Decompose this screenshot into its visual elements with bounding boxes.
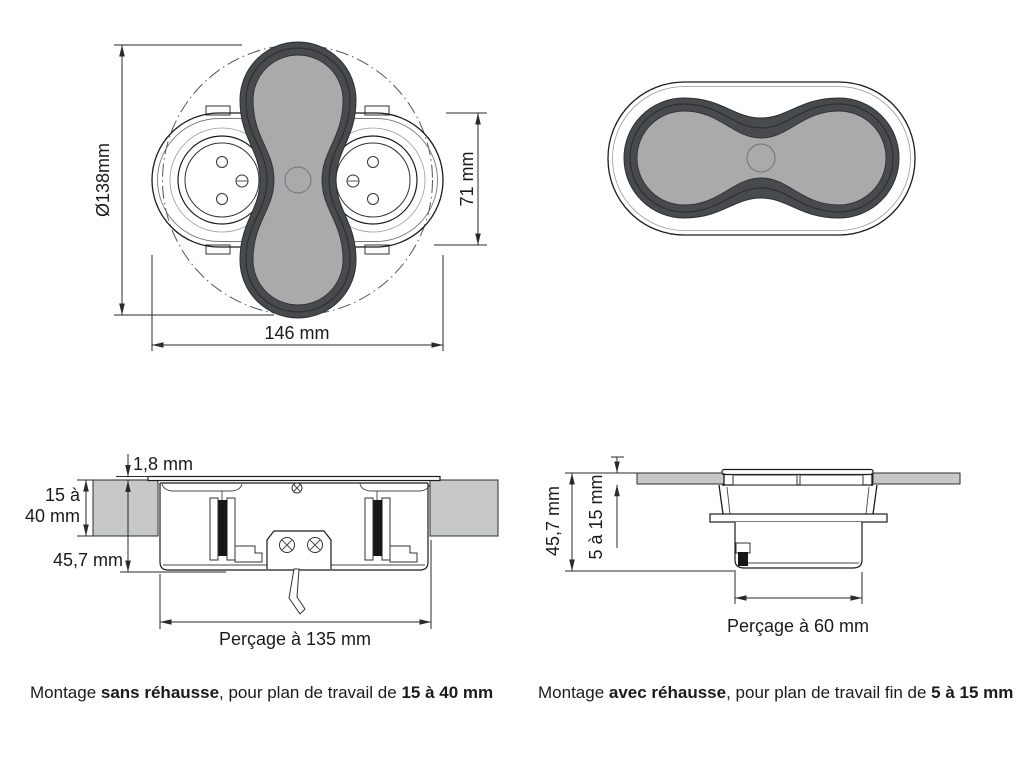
caption-text: Montage (30, 683, 101, 702)
technical-drawing: Ø138mm 71 mm 146 mm (0, 0, 1019, 770)
view-section-sans-rehausse: 1,8 mm 15 à 40 mm 45,7 mm Perçage à 135 … (25, 454, 498, 649)
dim-worktop-thin-label: 5 à 15 mm (586, 474, 606, 559)
clamp-screw-rod (374, 500, 383, 556)
cable-strap (289, 569, 305, 614)
dim-worktop-thin: 5 à 15 mm (586, 457, 624, 560)
caption-bold-mounting: avec réhausse (609, 683, 726, 702)
lid-screw (292, 483, 302, 493)
view-top-open: Ø138mm 71 mm 146 mm (93, 42, 487, 351)
dim-width-label: 146 mm (264, 323, 329, 343)
caption-avec-rehausse: Montage avec réhausse, pour plan de trav… (538, 683, 1013, 703)
dim-drill-60-label: Perçage à 60 mm (727, 616, 869, 636)
riser-flange (710, 514, 887, 522)
pin-hole-top (217, 157, 228, 168)
caption-text: , pour plan de travail de (219, 683, 401, 702)
dim-diameter-label: Ø138mm (93, 143, 113, 217)
view-section-avec-rehausse: 45,7 mm 5 à 15 mm Perçage à 60 mm (543, 457, 960, 636)
dim-worktop-label-line2: 40 mm (25, 506, 80, 526)
retaining-clip (736, 543, 750, 566)
dim-worktop-label-line1: 15 à (45, 485, 81, 505)
caption-sans-rehausse: Montage sans réhausse, pour plan de trav… (30, 683, 493, 703)
dim-depth-right-label: 45,7 mm (543, 486, 563, 556)
lid-left (733, 475, 797, 485)
cable-clamp (267, 531, 331, 614)
dim-diameter: Ø138mm (93, 45, 122, 315)
dim-height: 71 mm (434, 113, 487, 245)
pin-hole-bottom (368, 194, 379, 205)
dim-drill-60: Perçage à 60 mm (727, 572, 869, 636)
rotating-cover-closed (624, 98, 899, 218)
dim-height-label: 71 mm (457, 151, 477, 206)
dim-lip-label: 1,8 mm (133, 454, 193, 474)
caption-bold-mounting: sans réhausse (101, 683, 219, 702)
dim-depth-right: 45,7 mm (543, 473, 736, 571)
lid-right (800, 475, 863, 485)
riser-housing (710, 485, 887, 522)
caption-text: , pour plan de travail fin de (726, 683, 931, 702)
caption-bold-range: 5 à 15 mm (931, 683, 1013, 702)
drawing-sheet: Ø138mm 71 mm 146 mm (0, 0, 1019, 770)
dim-drill-135-label: Perçage à 135 mm (219, 629, 371, 649)
worktop-thin-left (637, 473, 724, 484)
pin-hole-bottom (217, 194, 228, 205)
dim-lip: 1,8 mm (116, 454, 193, 477)
bracket-screw-left (280, 538, 295, 553)
caption-text: Montage (538, 683, 609, 702)
worktop-thin-right (873, 473, 960, 484)
caption-bold-range: 15 à 40 mm (401, 683, 493, 702)
clamp-screw-rod (219, 500, 228, 556)
top-plate-lip (148, 477, 440, 481)
housing-box (735, 522, 862, 568)
top-plate (722, 470, 873, 487)
dim-depth-label: 45,7 mm (53, 550, 123, 570)
worktop-right (430, 480, 498, 536)
view-top-closed (608, 82, 915, 235)
bracket-screw-right (308, 538, 323, 553)
pin-hole-top (368, 157, 379, 168)
worktop-left (93, 480, 158, 536)
dim-worktop-thickness: 15 à 40 mm (25, 480, 95, 536)
